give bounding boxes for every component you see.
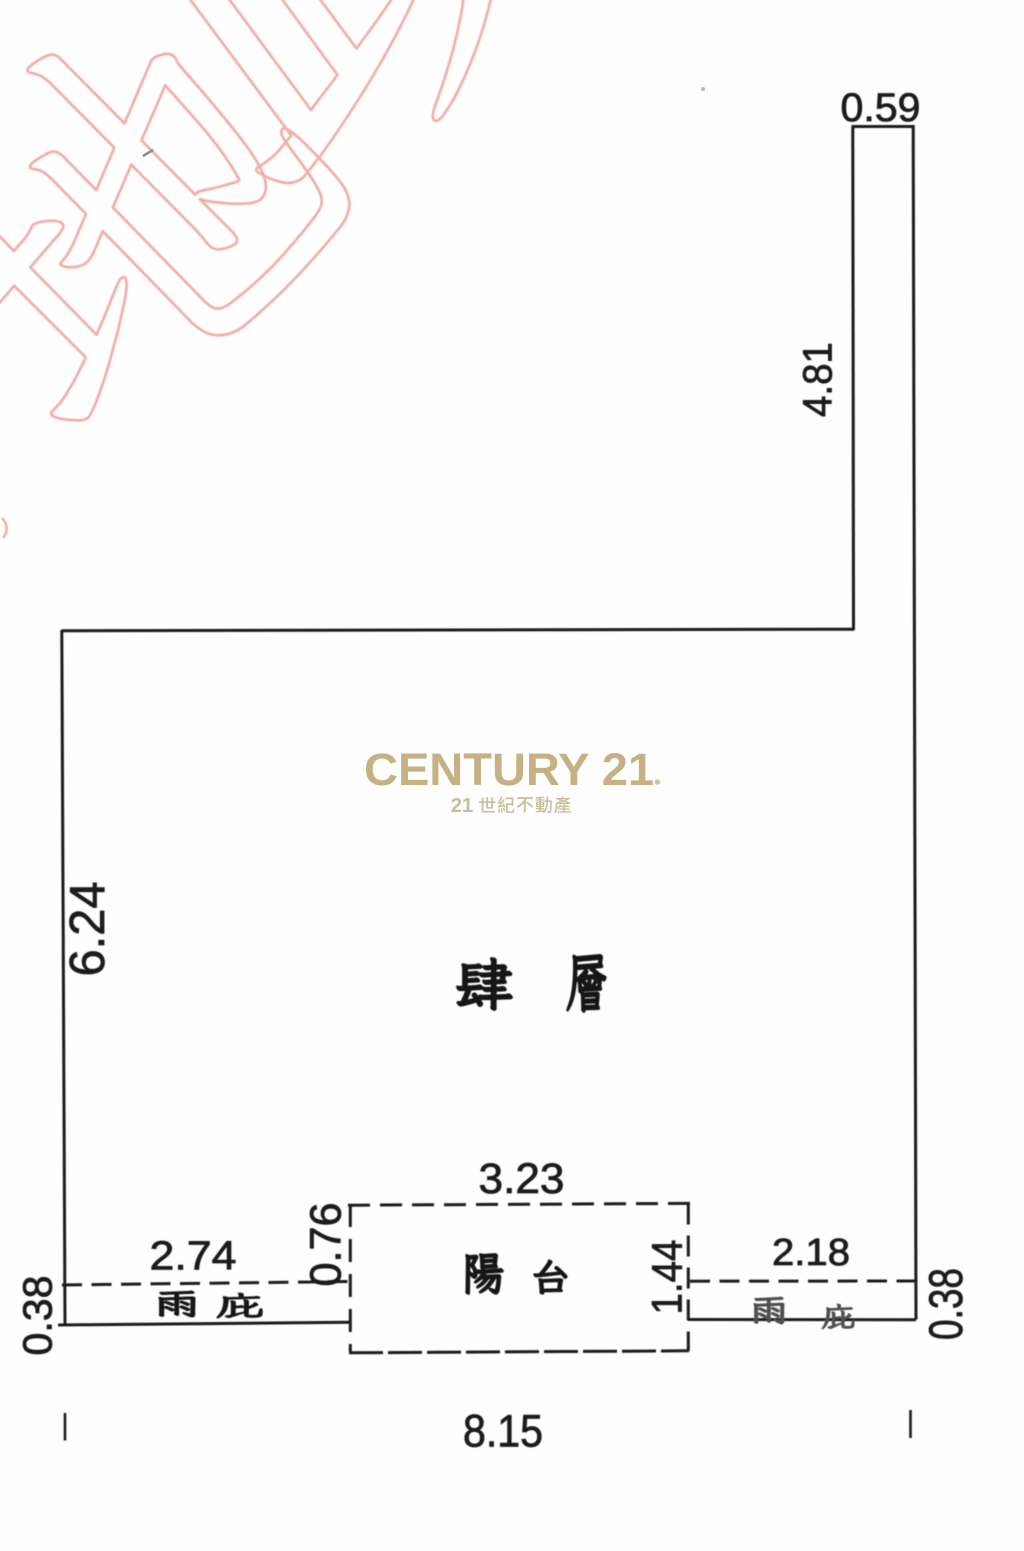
svg-text:0.38: 0.38 <box>15 1276 61 1356</box>
svg-text:6.24: 6.24 <box>61 882 115 977</box>
svg-text:CENTURY 21: CENTURY 21 <box>364 744 654 795</box>
svg-text:2.74: 2.74 <box>150 1233 237 1279</box>
svg-text:3.23: 3.23 <box>479 1155 565 1203</box>
svg-text:1.44: 1.44 <box>643 1240 691 1315</box>
svg-text:8.15: 8.15 <box>463 1406 543 1457</box>
svg-text:0.59: 0.59 <box>841 86 921 130</box>
svg-text:4.81: 4.81 <box>795 342 841 417</box>
svg-text:0.76: 0.76 <box>301 1203 350 1287</box>
svg-text:0.38: 0.38 <box>919 1268 972 1340</box>
svg-text:21: 21 <box>451 795 473 817</box>
svg-text:2.18: 2.18 <box>772 1232 850 1274</box>
